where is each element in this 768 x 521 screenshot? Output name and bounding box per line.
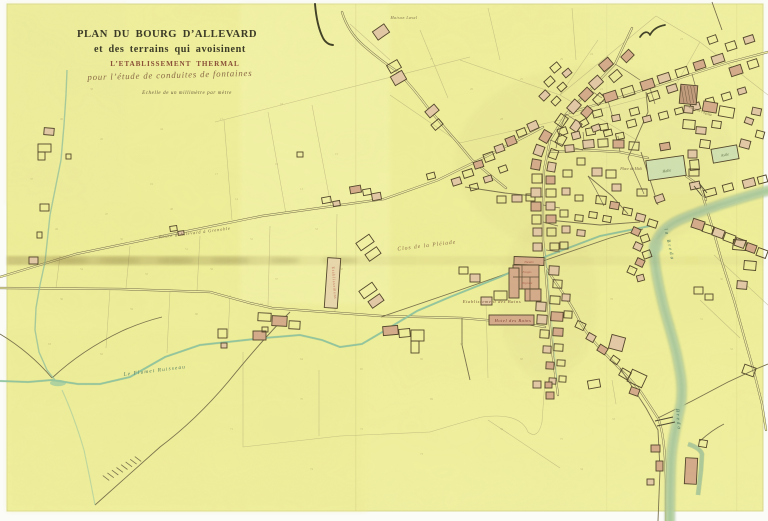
svg-text:Hotel des Bains: Hotel des Bains	[494, 318, 532, 323]
svg-text:Echelle de un millimètre par m: Echelle de un millimètre par mètre	[141, 91, 232, 96]
svg-text:Place du Midi: Place du Midi	[619, 167, 642, 171]
svg-text:Maison Laval: Maison Laval	[390, 16, 418, 20]
svg-text:PLAN DU BOURG D’ALLEVARD: PLAN DU BOURG D’ALLEVARD	[77, 29, 257, 40]
svg-text:Etablissement des Bains: Etablissement des Bains	[462, 299, 521, 304]
svg-text:L’ETABLISSEMENT THERMAL: L’ETABLISSEMENT THERMAL	[110, 60, 239, 68]
svg-text:et des terrains qui avoisinent: et des terrains qui avoisinent	[94, 44, 246, 55]
